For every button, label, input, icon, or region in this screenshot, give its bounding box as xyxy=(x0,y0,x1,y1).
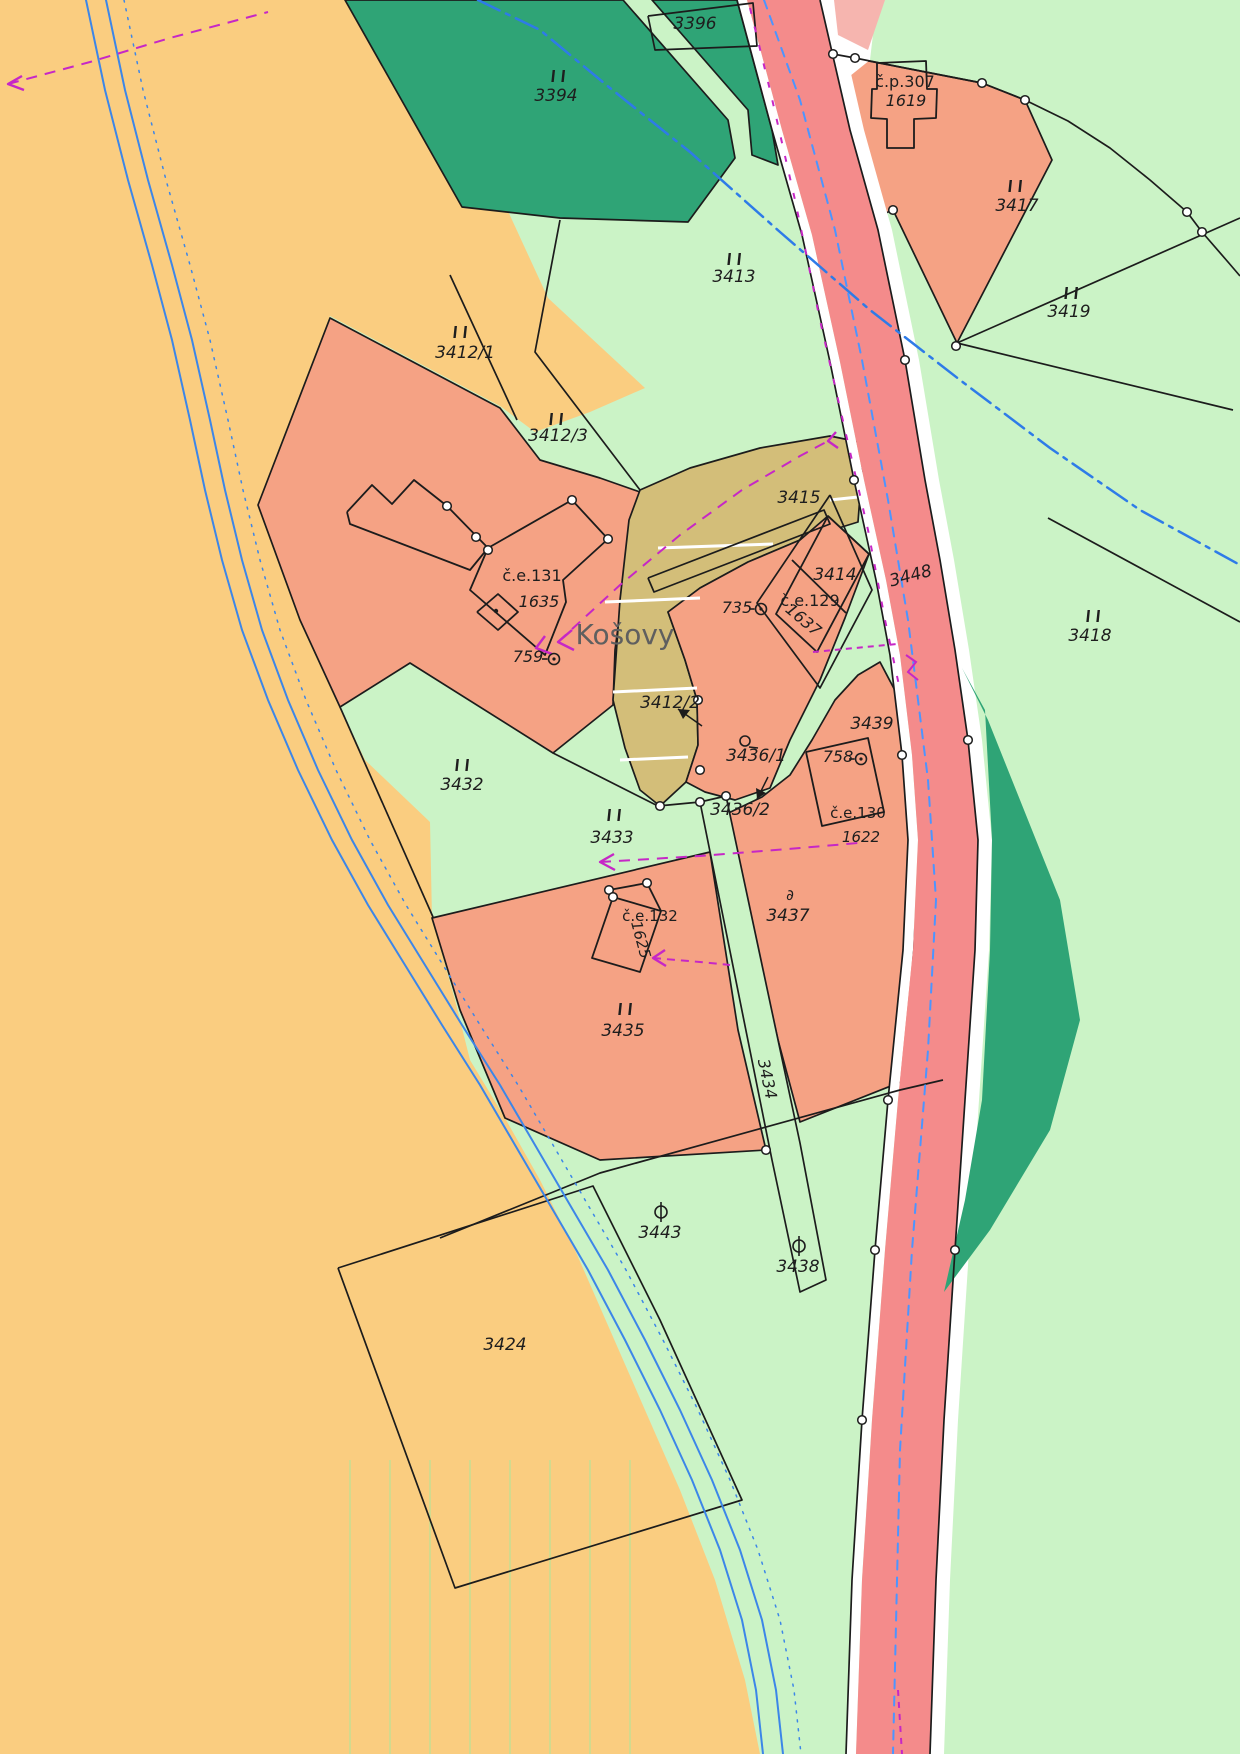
survey-point xyxy=(696,766,705,775)
survey-point xyxy=(604,535,613,544)
landuse-d-icon: ∂ xyxy=(786,886,794,904)
survey-point xyxy=(472,533,481,542)
survey-point xyxy=(696,798,705,807)
parcel-label: 3419 xyxy=(1047,302,1090,322)
parcel-label: č.e.131 xyxy=(502,566,561,585)
survey-point xyxy=(484,546,493,555)
parcel-label: 3438 xyxy=(776,1257,819,1277)
survey-point xyxy=(978,79,987,88)
cadastral-map: ∂33963394č.p.30716193417341334193412/134… xyxy=(0,0,1240,1754)
building-ce131-annex-dot xyxy=(494,609,498,613)
parcel-label: 3437 xyxy=(766,906,809,926)
control-point-icon xyxy=(552,657,555,660)
survey-point xyxy=(951,1246,960,1255)
survey-point xyxy=(643,879,652,888)
parcel-label: 3415 xyxy=(777,488,820,508)
parcel-label: 735 xyxy=(722,598,753,617)
survey-point xyxy=(1198,228,1207,237)
survey-point xyxy=(829,50,838,59)
control-point-icon xyxy=(759,607,762,610)
cadastral-map-canvas: ∂33963394č.p.30716193417341334193412/134… xyxy=(0,0,1240,1754)
parcel-label: 3436/1 xyxy=(726,746,786,766)
parcel-label: 3424 xyxy=(483,1335,526,1355)
survey-point xyxy=(884,1096,893,1105)
survey-point xyxy=(858,1416,867,1425)
survey-point xyxy=(871,1246,880,1255)
parcel-label: 3436/2 xyxy=(710,800,770,820)
survey-point xyxy=(656,802,665,811)
parcel-label: 1622 xyxy=(842,828,880,846)
survey-point xyxy=(609,893,618,902)
parcel-label: 759 xyxy=(513,647,544,666)
survey-point xyxy=(1021,96,1030,105)
parcel-label: 3433 xyxy=(590,828,633,848)
control-point-icon xyxy=(859,757,862,760)
parcel-label: 1619 xyxy=(886,91,927,110)
parcel-label: č.p.307 xyxy=(875,72,935,91)
parcel-label: 3413 xyxy=(712,267,755,287)
survey-point xyxy=(889,206,898,215)
parcel-label: č.e.130 xyxy=(830,804,886,822)
parcel-label: 3414 xyxy=(813,565,856,585)
parcel-label: 3396 xyxy=(673,14,716,34)
parcel-label: 1635 xyxy=(519,592,560,611)
parcel-label: 3394 xyxy=(534,86,577,106)
survey-point xyxy=(964,736,973,745)
parcel-label: 3443 xyxy=(638,1223,681,1243)
survey-point xyxy=(762,1146,771,1155)
parcel-label: 3418 xyxy=(1068,626,1111,646)
survey-point xyxy=(443,502,452,511)
parcel-label: Košovy xyxy=(576,618,675,651)
survey-point xyxy=(898,751,907,760)
survey-point xyxy=(1183,208,1192,217)
parcel-label: 3417 xyxy=(995,196,1038,216)
parcel-label: 3432 xyxy=(440,775,483,795)
parcel-label: 3435 xyxy=(601,1021,644,1041)
survey-point xyxy=(722,792,731,801)
survey-point xyxy=(850,476,859,485)
survey-point xyxy=(952,342,961,351)
parcel-label: 3412/2 xyxy=(640,693,700,713)
parcel-label: 3439 xyxy=(850,714,893,734)
survey-point xyxy=(851,54,860,63)
parcel-label: 3412/1 xyxy=(435,343,495,363)
survey-point xyxy=(901,356,910,365)
parcel-label: 3412/3 xyxy=(528,426,588,446)
survey-point xyxy=(568,496,577,505)
parcel-label: 758 xyxy=(823,747,854,766)
